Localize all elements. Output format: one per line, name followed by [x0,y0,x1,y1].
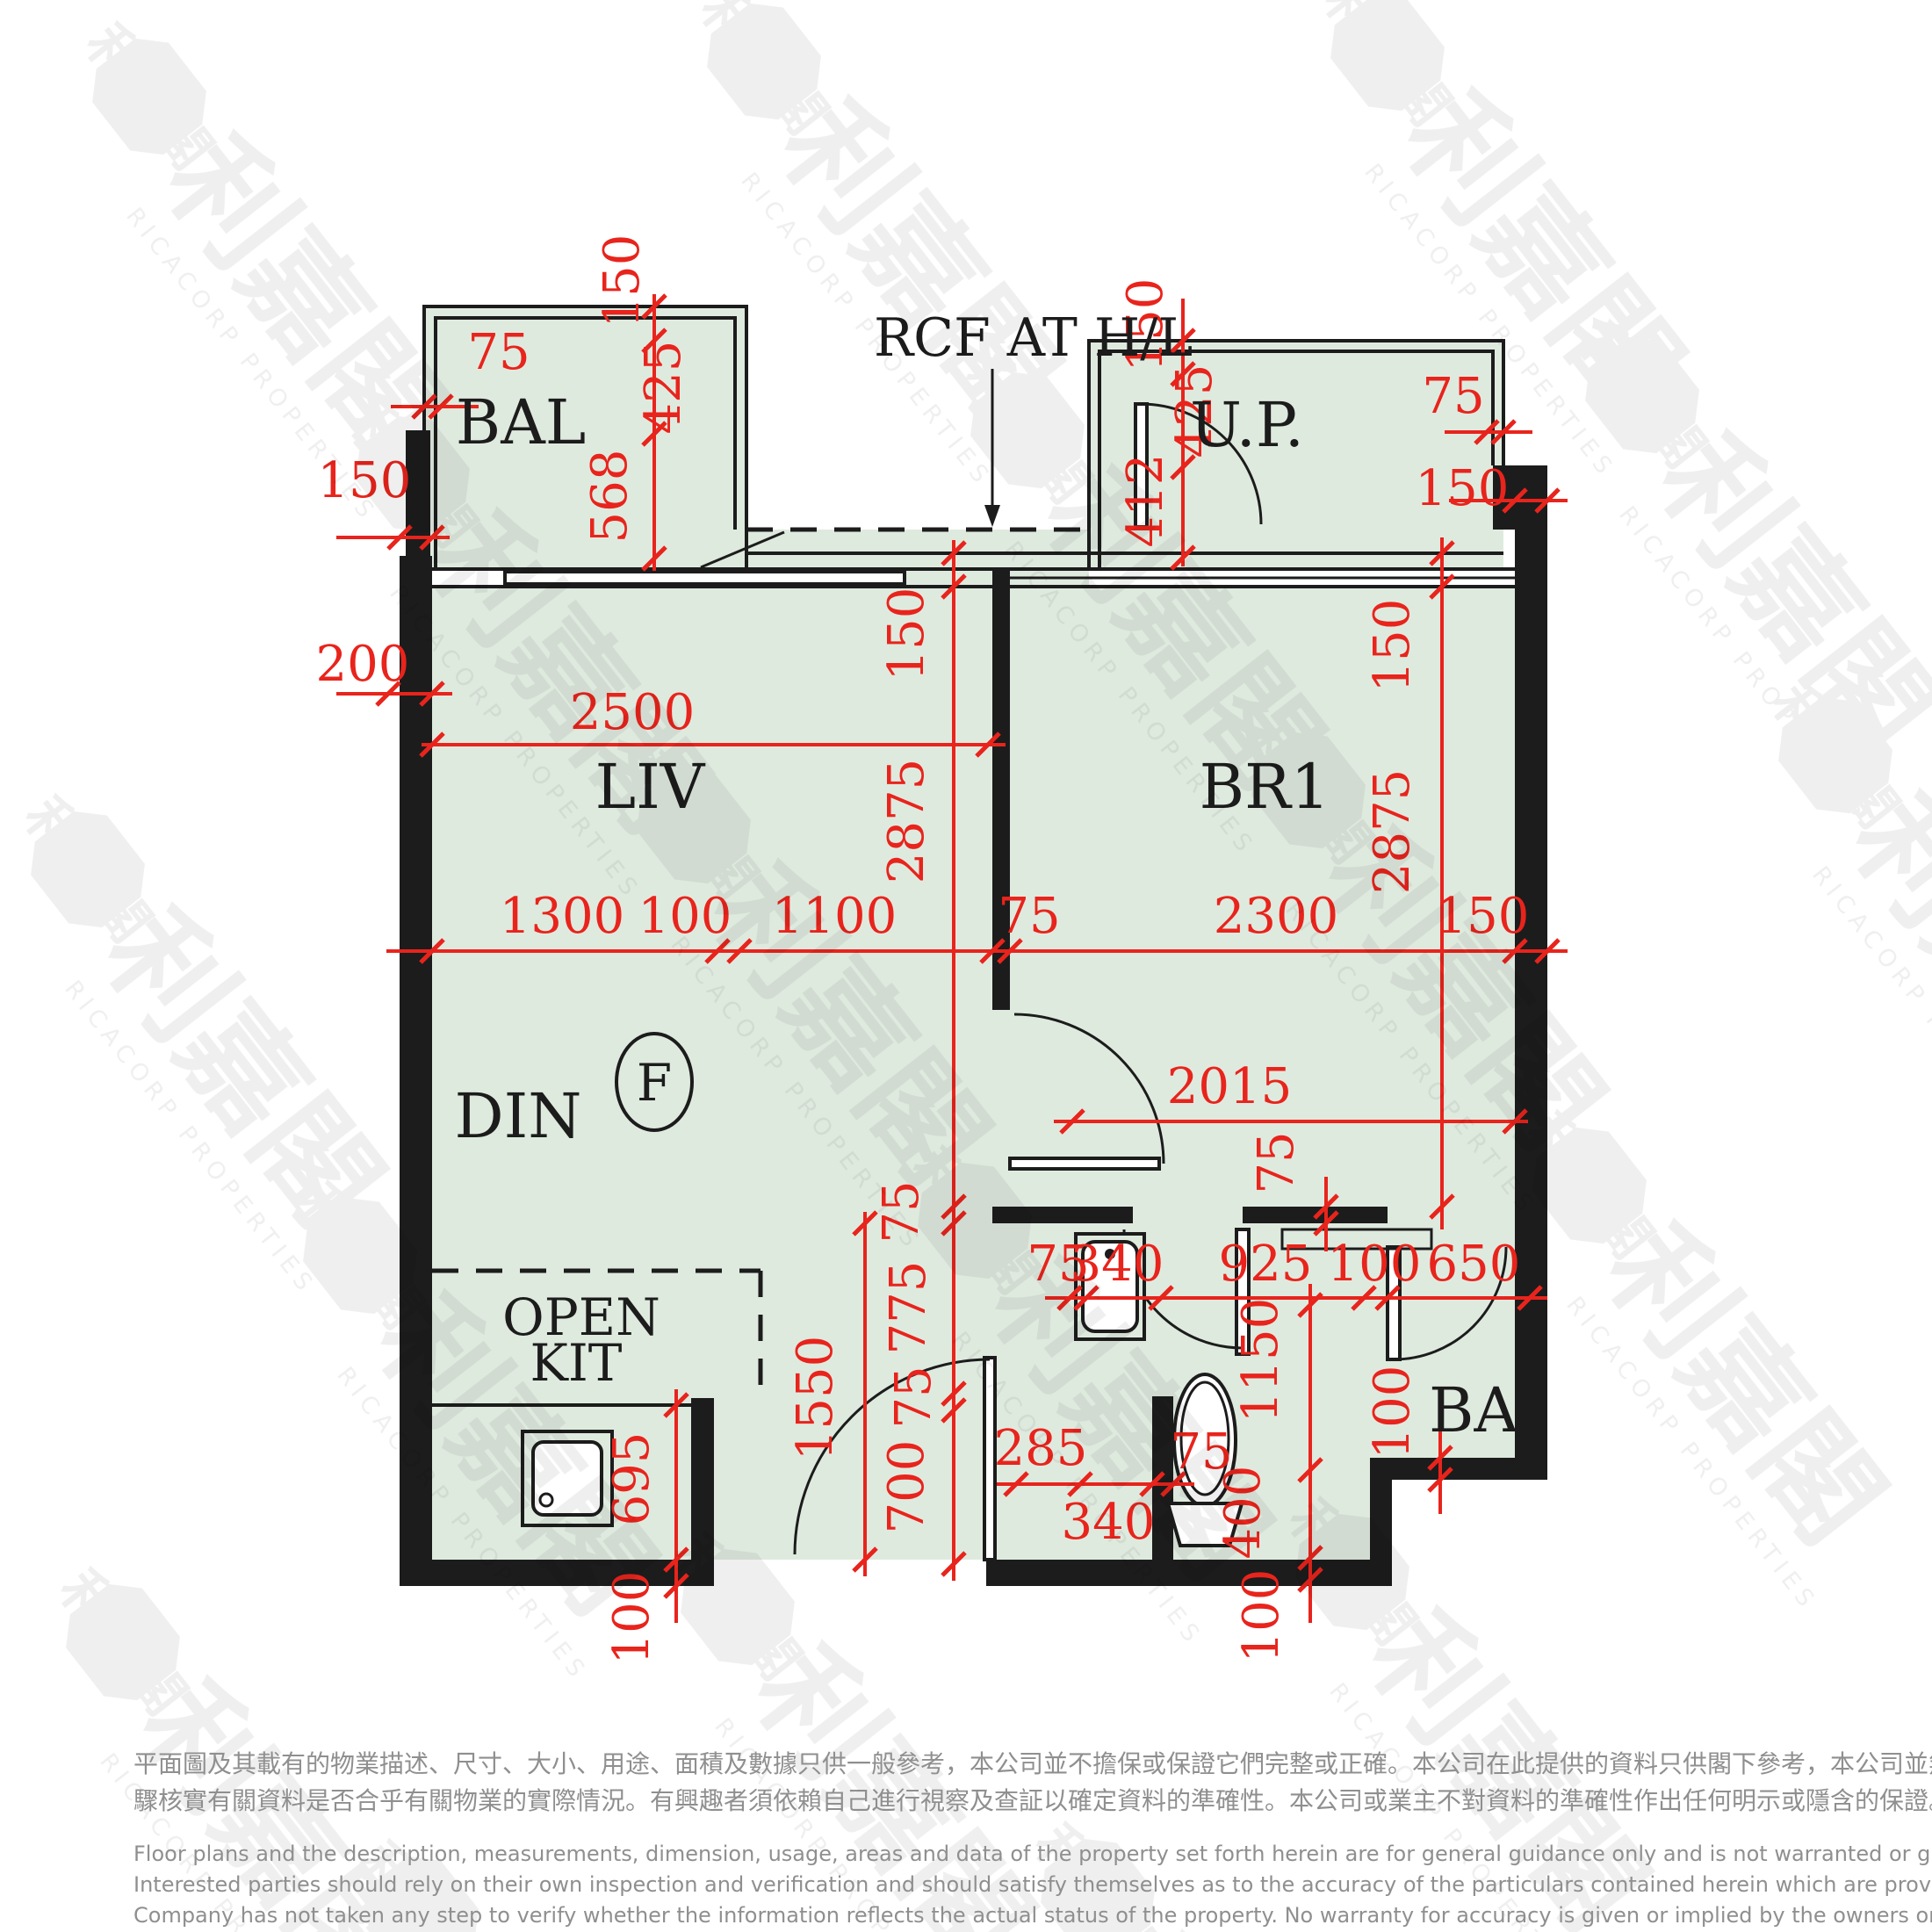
dim-left-200: 200 [316,636,410,693]
dim-up-150: 150 [1416,460,1510,517]
dim-bal-150: 150 [594,234,651,328]
dim-entry-1550: 1550 [787,1336,844,1461]
ba-bottom-wall [1370,1458,1547,1480]
dim-mid-775: 775 [880,1261,937,1355]
dim-mid-700: 700 [878,1440,935,1534]
dim-mid-2875: 2875 [878,759,935,884]
rcf-arrow-head [984,505,1000,527]
floorplan-page: 2500 1300 100 1100 75 2300 150 2015 75 3… [0,0,1932,1932]
dim-bal-425: 425 [635,341,692,435]
dim-bath-100b: 100 [1233,1569,1290,1663]
dim-up-75: 75 [1422,368,1484,425]
floorplan-drawing: 2500 1300 100 1100 75 2300 150 2015 75 3… [0,0,1932,1932]
dim-bath-1150: 1150 [1232,1298,1289,1424]
dim-bal-75: 75 [467,324,530,381]
disclaimer-en-line1: Floor plans and the description, measure… [133,1839,1932,1870]
dim-bath-650: 650 [1427,1236,1521,1293]
label-bathroom: BA [1429,1374,1519,1446]
dim-ba-100: 100 [1364,1366,1421,1460]
label-floor-mark: F [637,1053,672,1113]
dim-br1-gap: 2015 [1167,1058,1293,1115]
dim-br1-nib: 75 [1248,1131,1305,1193]
label-balcony: BAL [456,386,586,458]
dim-row-1300: 1300 [500,888,625,945]
disclaimer-cn-line2: 驟核實有關資料是否合乎有關物業的實際情況。有興趣者須依賴自己進行視察及查証以確定… [133,1783,1932,1820]
dim-bal-568: 568 [581,450,638,544]
dim-bath-100: 100 [1328,1236,1422,1293]
dim-mid-150: 150 [878,588,935,681]
label-dining: DIN [454,1080,581,1152]
dim-br1-150: 150 [1364,599,1421,693]
disclaimer: 平面圖及其載有的物業描述、尺寸、大小、用途、面積及數據只供一般參考，本公司並不擔… [133,1746,1932,1931]
dim-bath-925: 925 [1219,1236,1313,1293]
disclaimer-en-line3: Company has not taken any step to verify… [133,1900,1932,1931]
disclaimer-cn-line1: 平面圖及其載有的物業描述、尺寸、大小、用途、面積及數據只供一般參考，本公司並不擔… [133,1746,1932,1783]
dim-mid-75b: 75 [885,1366,942,1428]
br1-door-leaf [1010,1158,1159,1169]
dim-row-75: 75 [998,888,1060,945]
disclaimer-en-line2: Interested parties should rely on their … [133,1870,1932,1900]
label-utility: U.P. [1190,389,1304,461]
